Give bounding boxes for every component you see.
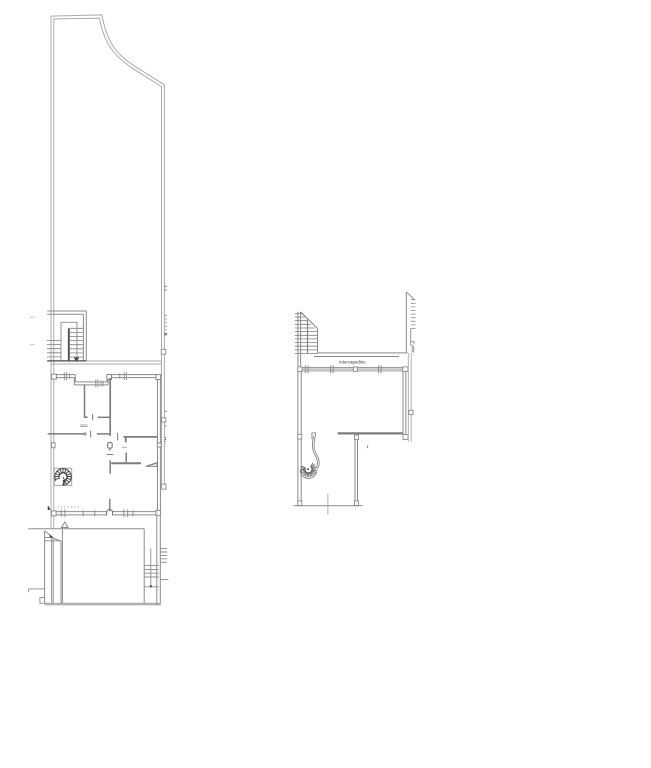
svg-text:intercapedine: intercapedine xyxy=(339,359,366,364)
